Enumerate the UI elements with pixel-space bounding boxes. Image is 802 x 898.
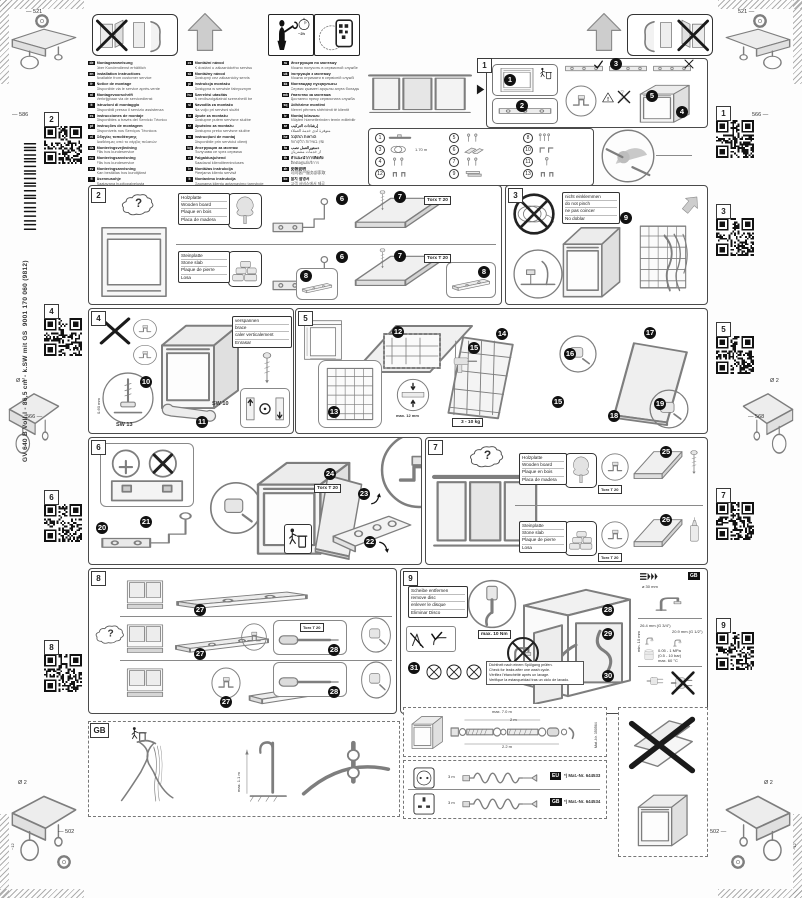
tools-note-icons [409, 629, 453, 649]
label-line: Plaque de pierre [522, 537, 564, 544]
screw-icon [378, 190, 387, 212]
language-code-badge: es [88, 114, 95, 118]
dim-label: — 502 [58, 829, 74, 835]
step-marker: 17 [644, 327, 656, 339]
drill-dim: Ø 2 [764, 780, 773, 786]
step-marker: 24 [324, 468, 336, 480]
edge-fitting-drawing [6, 386, 62, 464]
part-item: 13 [523, 169, 561, 178]
qr-label: 9 [716, 618, 731, 633]
step-marker: 28 [328, 686, 340, 698]
language-code-badge: ru [282, 61, 289, 65]
language-item: svMonteringsanvisningKan beställas hos k… [88, 167, 183, 176]
wood-bracket-drawing [268, 192, 332, 240]
part-item: 6 [449, 145, 487, 154]
standpipe-drawing [238, 738, 294, 804]
cross-icon [684, 59, 694, 69]
language-text: Montāžas instrukcijaPieejama klientu ser… [195, 167, 237, 176]
bracket-detail-circle [600, 452, 630, 482]
no-tilt-panels-icon [626, 714, 698, 776]
step-marker: 3 [610, 58, 622, 70]
no-pliers-cross-icon [617, 90, 631, 104]
label-line: Wooden board [181, 202, 227, 209]
edge-fitting-drawing [740, 386, 796, 464]
language-text: Монтаждау нұсқаулығыСервис қызметі арқыл… [291, 82, 360, 91]
pointer-triangle-icon [476, 84, 485, 95]
tree-icon-box [228, 193, 262, 229]
no-wrong-panels-icon [95, 17, 175, 53]
step-marker: 27 [194, 648, 206, 660]
wood-label-box: HolzplatteWooden boardPlaque en boisPlac… [519, 453, 567, 485]
part-number: 13 [523, 169, 533, 179]
dishwasher-with-panel-drawing [632, 788, 696, 848]
language-code-badge: hr [186, 114, 193, 118]
uk-socket-icon [412, 792, 436, 816]
dim-label: — 568 [748, 414, 764, 420]
step-marker: 27 [194, 604, 206, 616]
language-text: Szerelési utasításA vevőszolgálatnál sze… [195, 93, 253, 102]
wood-label-box: HolzplatteWooden boardPlaque en boisPlac… [178, 193, 230, 225]
leak-check-note: Dichtheit nach einem Spülgang prüfen.Che… [486, 661, 584, 685]
torque-chip: max. 10 Nm [478, 630, 511, 639]
qr-code [716, 502, 754, 540]
language-code-badge: ko [282, 177, 289, 181]
step-marker: 7 [394, 250, 406, 262]
language-item: ukІнструкція з монтажуМожна отримати в с… [282, 72, 375, 81]
no-extension-cross-icon [670, 670, 696, 696]
corner-fitting-drawing [8, 24, 80, 76]
parts-column: 5679 [449, 133, 487, 178]
see-gb-arrows-icon [640, 572, 660, 581]
part-number: 8 [523, 133, 533, 143]
plinth-corner-drawing [360, 660, 392, 700]
label-line: Stone slab [181, 260, 227, 267]
corner-hatch-bl-h [0, 889, 84, 898]
language-code-badge: lv [186, 167, 193, 171]
screw-icon [378, 248, 387, 270]
torx-chip: Torx T 20 [598, 553, 622, 562]
torx-chip: Torx T 20 [424, 254, 451, 263]
step-marker: 14 [496, 328, 508, 340]
part-icon [535, 145, 561, 154]
language-item: csMontážní návodK dostání u zákaznického… [186, 61, 279, 70]
language-text: הוראות התקנהזמין בשירות הלקוחות [291, 135, 325, 144]
pad-detail-circle [648, 388, 690, 430]
prohibition-icon [466, 664, 482, 680]
feet-hose-detail-circle [512, 248, 564, 300]
language-text: 安装说明可向客户服务部索取 [291, 167, 326, 176]
detail-circle [210, 666, 242, 700]
torx-chip: Torx T 20 [300, 623, 324, 632]
panel-3-number: 3 [508, 188, 523, 203]
language-item: daMonteringsvejledningFås hos kundeservi… [88, 146, 183, 155]
bricks-icon-box [565, 521, 597, 556]
language-code-badge: bg [186, 146, 193, 150]
language-code-badge: sv [88, 167, 95, 171]
gb-panel-label: GB [90, 723, 109, 738]
tap-thread-icon [644, 634, 656, 646]
torx-chip: Torx T 20 [314, 484, 341, 493]
torx-chip: Torx T 20 [424, 196, 451, 205]
label-line: remove disc [411, 595, 465, 602]
divider [638, 618, 702, 619]
language-item: slNavodila za montažoNa voljo pri servis… [186, 103, 279, 112]
tools-note-box [406, 626, 456, 652]
step-marker: 13 [328, 406, 340, 418]
language-text: MonteringsanvisningFås hos kundeservice [97, 156, 136, 165]
upright-arrow-icon [186, 12, 224, 52]
stone-label-box: SteinplatteStone slabPlaque de pierreLos… [519, 521, 567, 553]
part-number: 12 [375, 169, 385, 179]
power-cable-drawing [462, 792, 546, 816]
language-text: إرشادات التركيبمتوفرة لدى خدمة العملاء [291, 124, 331, 133]
language-text: Navodila za montažoNa voljo pri servisni… [195, 103, 240, 112]
depth-dim: ~12 [792, 843, 797, 850]
part-icon [461, 145, 487, 154]
svg-text:?: ? [108, 629, 114, 640]
language-code-badge: mk [282, 93, 289, 97]
language-code-badge: pt [88, 124, 95, 128]
installer-time-box: ~2h [268, 14, 314, 56]
language-item: arإرشادات التركيبمتوفرة لدى خدمة العملاء [282, 124, 375, 133]
step-marker: 15 [468, 342, 480, 354]
no-pinch-label-box: nicht einklemmendo not pinchne pas coinc… [562, 192, 620, 224]
svg-text:?: ? [135, 198, 142, 210]
corner-hatch-tr-h [718, 0, 802, 9]
question-cloud-icon: ? [468, 442, 508, 470]
check-icon [594, 60, 603, 69]
hoses-drawing [654, 232, 698, 294]
ext-total-dim: max. 7.0 m [492, 709, 512, 714]
qr-label: 5 [716, 322, 731, 337]
hose-extension-drawing [450, 712, 586, 752]
language-code-badge: de [88, 61, 95, 65]
qr-code [716, 632, 754, 670]
panel-7-number: 7 [428, 440, 443, 455]
part-number: 5 [449, 133, 459, 143]
power-plug-icon [646, 672, 666, 690]
label-line: Holzplatte [181, 195, 227, 202]
language-code-badge: ro [186, 135, 193, 139]
drill-icon [452, 352, 478, 374]
remove-disc-label-box: Scheibe entfernenremove discenlever le d… [408, 586, 468, 618]
dim-label: 566 — [26, 414, 42, 420]
part-note: 1.70 m [415, 147, 427, 152]
language-text: Upute za montažuDostupne putem servisne … [195, 114, 251, 123]
language-item: enInstallation instructionsAvailable fro… [88, 72, 183, 81]
g12-dim: 20.9 mm (G 1/2") [672, 629, 703, 634]
language-code-badge: fa [282, 146, 289, 150]
hose-over-sink-drawing [300, 736, 392, 806]
label-line: nicht einklemmen [565, 194, 617, 201]
order-number: 9001 170 060 (9812) [22, 260, 29, 326]
language-text: Упатство за монтажаДостапно преку сервис… [291, 93, 355, 102]
part-item: 1 [375, 133, 427, 142]
qr-label: 7 [716, 488, 731, 503]
label-line: enlever le disque [411, 602, 465, 609]
step-marker: 11 [196, 416, 208, 428]
language-text: Instruções de montagemDisponíveis nos Se… [97, 124, 157, 133]
language-code-badge: no [88, 156, 95, 160]
g34-dim: 26.4 mm (G 3/4") [640, 623, 671, 628]
language-code-badge: lt [186, 177, 193, 181]
part-item: 8 [523, 133, 561, 142]
stone-icon [568, 526, 594, 551]
sw10-label: SW 10 [212, 401, 229, 407]
weight-chip: 3 - 10 kg [452, 418, 483, 427]
dim-label: — 521 [26, 9, 42, 15]
dishwasher-door-drawing [497, 67, 537, 93]
corner-fitting-drawing [722, 24, 794, 76]
part-item: 9 [449, 169, 487, 178]
language-item: hrUpute za montažuDostupne putem servisn… [186, 114, 279, 123]
language-text: Notice de montageDisponible via le servi… [97, 82, 160, 91]
step-marker: 12 [392, 326, 404, 338]
temp-dim: max. 60 °C [658, 658, 678, 663]
min10-dim: min. 10 mm [636, 631, 641, 652]
cable-length: 3 m [448, 800, 455, 805]
language-text: Installation instructionsAvailable from … [97, 72, 152, 81]
label-line: Plaque en bois [181, 209, 227, 216]
label-line: Wooden board [522, 462, 564, 469]
corner-hatch-tl-h [0, 0, 84, 9]
language-list-col1: deMontageanweisungüber Kundendienst erhä… [88, 61, 183, 179]
part-icon [387, 157, 413, 166]
language-code-badge: uk [282, 72, 289, 76]
part-icon [461, 133, 487, 142]
step-marker: 6 [336, 193, 348, 205]
part-item: 10 [523, 145, 561, 154]
language-item: deMontageanweisungüber Kundendienst erhä… [88, 61, 183, 70]
language-code-badge: et [186, 156, 193, 160]
language-text: Инструкция за монтажПолучава се чрез сер… [195, 146, 242, 155]
power-cable-drawing [462, 766, 546, 790]
language-text: دستورالعمل نصباز خدمات مشتریان [291, 146, 322, 155]
step-marker: 26 [660, 514, 672, 526]
language-text: Istruzioni di montaggioDisponibili press… [97, 103, 164, 112]
language-item: frNotice de montageDisponible via le ser… [88, 82, 183, 91]
language-item: noMonteringsanvisningFås hos kundeservic… [88, 156, 183, 165]
clips-right-wrong-drawing [103, 446, 191, 504]
alignment-detail-circle [600, 128, 656, 184]
language-code-badge: pl [186, 82, 193, 86]
no-wrong-panels-icon [630, 17, 710, 53]
qr-label: 8 [44, 640, 59, 655]
question-cloud-icon: ? [120, 190, 158, 218]
step-marker: 8 [300, 270, 312, 282]
parts-column: 8101113 [523, 133, 561, 178]
counter-drawing [632, 512, 684, 560]
language-item: itIstruzioni di montaggioDisponibili pre… [88, 103, 183, 112]
label-line: Placa de madera [181, 217, 227, 223]
part-number: 7 [449, 157, 459, 167]
plinth-rail-drawing [172, 574, 312, 612]
matnr-eu: *) Mat.-Nr. 644533 [564, 773, 600, 778]
ext-b-dim: 2.2 m [502, 744, 512, 749]
qr-code [716, 218, 754, 256]
label-line: caler verticalement [235, 332, 289, 339]
part-number: 3 [375, 145, 385, 155]
language-item: mkУпатство за монтажаДостапно преку серв… [282, 93, 375, 102]
qr-code [716, 120, 754, 158]
language-list-col3: ruИнструкция по монтажуМожно получить в … [282, 61, 375, 179]
label-line: Eliminar Disco [411, 610, 465, 616]
label-line: Enrasar [235, 340, 289, 346]
label-line: Verifique la estanqueidad tras un ciclo … [489, 678, 581, 683]
language-text: Uputstvo za montažuDostupno preko servis… [195, 124, 250, 133]
step-marker: 18 [608, 410, 620, 422]
language-code-badge: ar [282, 124, 289, 128]
language-item: kkМонтаждау нұсқаулығыСервис қызметі арқ… [282, 82, 375, 91]
detail-circle [240, 622, 268, 652]
language-item: huSzerelési utasításA vevőszolgálatnál s… [186, 93, 279, 102]
svg-text:!: ! [607, 97, 609, 103]
connector-line [656, 155, 692, 156]
parts-column: 131.70 m412 [375, 133, 427, 178]
divider [176, 244, 496, 245]
part-icon [535, 169, 561, 178]
matnr-gb: *) Mat.-Nr. 644534 [564, 799, 600, 804]
part-item: 5 [449, 133, 487, 142]
language-text: Instrukcja montażuDostępna w serwisie fa… [195, 82, 252, 91]
part-item: 4 [375, 157, 427, 166]
label-line: do not pinch [565, 201, 617, 208]
level-legend-icon [244, 392, 286, 424]
detail-box [318, 360, 382, 428]
language-code-badge: sq [282, 103, 289, 107]
qr-label: 6 [44, 490, 59, 505]
counter-drawing [632, 444, 684, 492]
thickness-dim: max. 12 mm [396, 413, 419, 418]
dim-label: 502 — [710, 829, 726, 835]
stone-icon [231, 255, 259, 283]
plinth-corner-drawing [360, 616, 392, 654]
part-number: 11 [523, 157, 533, 167]
hose-matnr: Mat.-Nr. 350564 [594, 722, 598, 748]
divider [408, 789, 600, 790]
drain-height-dim: max. 1.1 m [236, 772, 241, 792]
language-text: MonteringsvejledningFås hos kundeservice [97, 146, 137, 155]
divider [120, 660, 392, 661]
panel-1-number: 1 [477, 58, 492, 73]
brace-label-box: verspannenbracecaler verticalementEnrasa… [232, 316, 292, 348]
language-code-badge: fr [88, 82, 95, 86]
step1-box [492, 64, 558, 96]
language-code-badge: fi [88, 177, 95, 181]
dishwasher-push-in-drawing [556, 218, 630, 300]
step-marker: 15 [552, 396, 564, 408]
part-icon [461, 169, 487, 178]
panel-4-number: 4 [91, 311, 106, 326]
label-line: verspannen [235, 318, 289, 325]
label-line: Plaque de pierre [181, 267, 227, 274]
installer-icon [272, 19, 298, 52]
label-line: Losa [181, 275, 227, 281]
trash-icon [287, 527, 309, 551]
language-item: sqUdhëzime montimiMerret përmes shërbimi… [282, 103, 375, 112]
step-marker: 16 [564, 348, 576, 360]
dishwasher-rear-drawing [408, 712, 448, 750]
language-text: Instrucţiuni de montajDisponibile prin s… [195, 135, 248, 144]
corner-hatch-br-v [793, 814, 802, 898]
language-code-badge: zh [282, 167, 289, 171]
part-item: 31.70 m [375, 145, 427, 154]
language-code-badge: kk [282, 82, 289, 86]
qr-code [44, 126, 82, 164]
door-bracket-drawing [94, 506, 198, 556]
language-text: Montážní návodK dostání u zákaznického s… [195, 61, 253, 70]
step-marker: 27 [220, 696, 232, 708]
part-icon [387, 133, 413, 142]
language-item: ruИнструкция по монтажуМожно получить в … [282, 61, 375, 70]
label-line: ne pas coincer [565, 208, 617, 215]
qr-label: 1 [716, 106, 731, 121]
language-item: esInstrucciones de montajeDisponibles a … [88, 114, 183, 123]
model-text: GV 640 B Voll-I - 86,5 cm - k.SW mit GS [22, 330, 29, 462]
qr-label: 2 [44, 112, 59, 127]
qr-code [44, 504, 82, 542]
language-text: Інструкція з монтажуМожна отримати в сер… [291, 72, 355, 81]
language-text: PaigaldusjuhendSaadaval klienditeenindus… [195, 156, 244, 165]
language-code-badge: tr [282, 114, 289, 118]
step-marker: 2 [516, 100, 528, 112]
language-text: Montážny návodDostupný cez zákaznícky se… [195, 72, 250, 81]
language-item: ptInstruções de montagemDisponíveis nos … [88, 124, 183, 133]
divider [515, 505, 703, 506]
label-line: Losa [522, 545, 564, 551]
part-icon [387, 169, 413, 178]
label-line: Steinplatte [181, 253, 227, 260]
language-code-badge: hu [186, 93, 193, 97]
upright-arrow-icon [585, 12, 623, 52]
sw13-label: SW 13 [116, 422, 133, 428]
step-marker: 28 [602, 604, 614, 616]
prohibition-icon [426, 664, 442, 680]
drill-dim: Ø 2 [16, 378, 25, 384]
step-marker: 7 [394, 191, 406, 203]
part-number: 6 [449, 145, 459, 155]
language-code-badge: sr [186, 124, 193, 128]
step-marker: 28 [328, 644, 340, 656]
depth-dim: ~12 [10, 843, 15, 850]
step-marker: 25 [660, 446, 672, 458]
tree-icon [568, 455, 594, 485]
part-icon [461, 157, 487, 166]
language-item: skMontážny návodDostupný cez zákaznícky … [186, 72, 279, 81]
part-icon [535, 133, 561, 142]
panel-8-number: 8 [91, 571, 106, 586]
language-code-badge: sk [186, 72, 193, 76]
label-line: No doblar [565, 216, 617, 222]
ext-a-dim: 2 m [510, 717, 517, 722]
packaging-panels-box [92, 14, 178, 56]
language-item: srUputstvo za montažuDostupno preko serv… [186, 124, 279, 133]
corner-hatch-br-h [718, 889, 802, 898]
hole-dim: ø 30 mm [642, 584, 658, 589]
corner-fitting-drawing [722, 788, 794, 872]
stone-label-box: SteinplatteStone slabPlaque de pierreLos… [178, 251, 230, 283]
language-item: faدستورالعمل نصباز خدمات مشتریان [282, 146, 375, 155]
qr-code [716, 336, 754, 374]
language-code-badge: it [88, 103, 95, 107]
faucet-drawing [652, 590, 690, 614]
language-item: heהוראות התקנהזמין בשירות הלקוחות [282, 135, 375, 144]
step-marker: 29 [602, 628, 614, 640]
language-code-badge: cs [186, 61, 193, 65]
part-number: 4 [375, 157, 385, 167]
panel-2-number: 2 [91, 188, 106, 203]
part-number: 1 [375, 133, 385, 143]
